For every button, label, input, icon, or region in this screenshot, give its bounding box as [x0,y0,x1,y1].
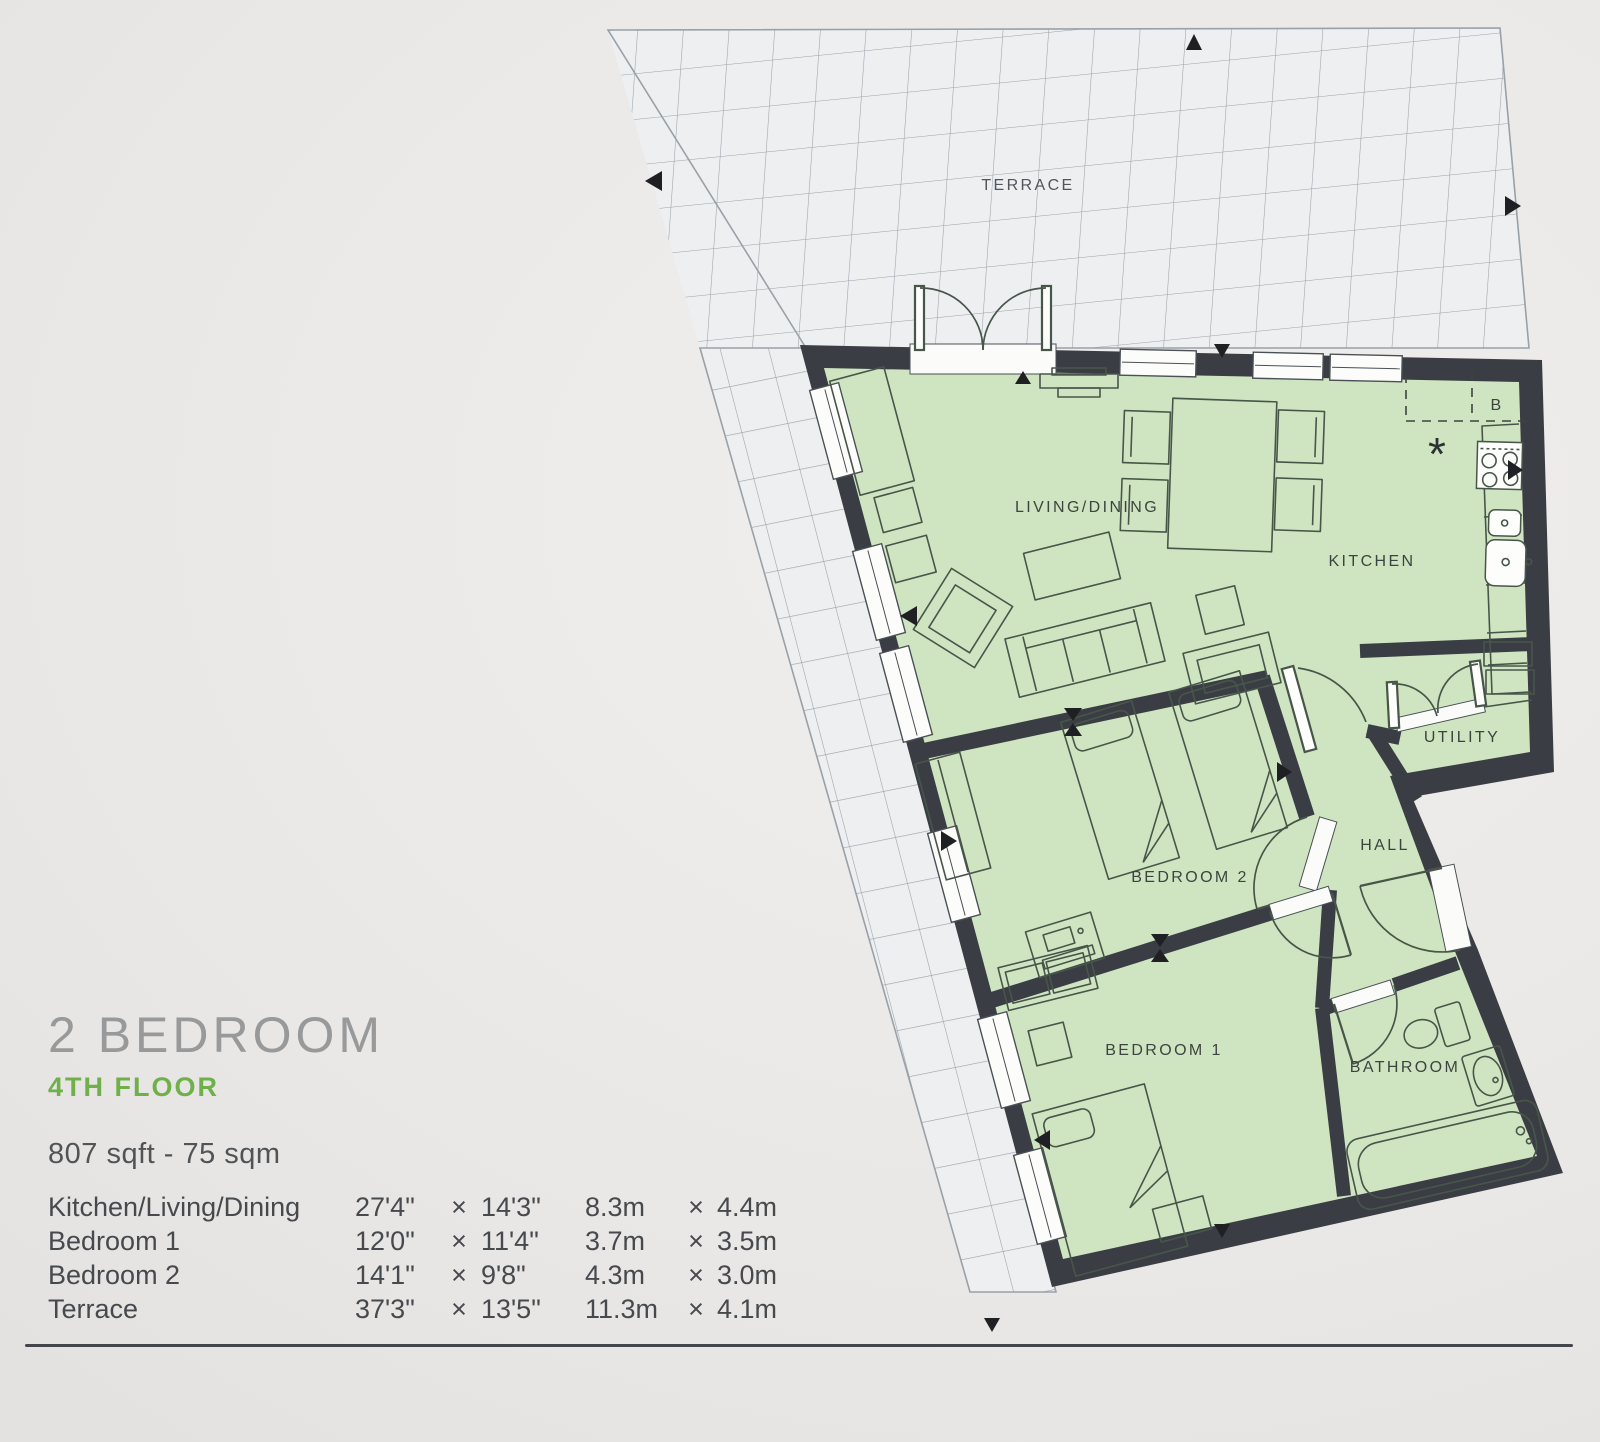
room-name: Bedroom 1 [48,1226,355,1257]
imperial-width: 27'4" [355,1192,437,1223]
living-label: LIVING/DINING [1015,499,1159,516]
times-symbol: × [437,1192,481,1223]
times-symbol: × [437,1294,481,1325]
imperial-width: 12'0" [355,1226,437,1257]
room-name: Bedroom 2 [48,1260,355,1291]
utility-label: UTILITY [1424,729,1500,746]
boiler-label: B [1490,397,1503,414]
window [1253,352,1324,380]
metric-height: 3.5m [717,1226,797,1257]
imperial-height: 11'4" [481,1226,585,1257]
times-symbol: × [437,1226,481,1257]
hob-marker-label: * [1428,428,1446,480]
imperial-width: 37'3" [355,1294,437,1325]
metric-height: 4.1m [717,1294,797,1325]
bedroom2-label: BEDROOM 2 [1131,869,1249,886]
floor-label: 4TH FLOOR [48,1072,219,1103]
kitchen-label: KITCHEN [1328,553,1415,570]
room-name: Terrace [48,1294,355,1325]
bedroom1-label: BEDROOM 1 [1105,1042,1223,1059]
window [1120,349,1197,377]
metric-width: 11.3m [585,1294,675,1325]
room-name: Kitchen/Living/Dining [48,1192,355,1223]
bottom-divider [25,1344,1573,1347]
imperial-height: 13'5" [481,1294,585,1325]
floorplan-page: TERRACE [0,0,1600,1442]
times-symbol: × [437,1260,481,1291]
times-symbol: × [675,1294,717,1325]
marker-icon [984,1318,1000,1332]
terrace-label: TERRACE [981,177,1074,194]
imperial-width: 14'1" [355,1260,437,1291]
hall-label: HALL [1360,837,1410,854]
window [1330,354,1403,382]
times-symbol: × [675,1260,717,1291]
table-row: Bedroom 1 12'0" × 11'4" 3.7m × 3.5m [48,1224,797,1258]
table-row: Kitchen/Living/Dining 27'4" × 14'3" 8.3m… [48,1190,797,1224]
times-symbol: × [675,1192,717,1223]
dimensions-table: Kitchen/Living/Dining 27'4" × 14'3" 8.3m… [48,1190,797,1326]
metric-width: 8.3m [585,1192,675,1223]
area-label: 807 sqft - 75 sqm [48,1138,281,1171]
metric-height: 4.4m [717,1192,797,1223]
table-row: Bedroom 2 14'1" × 9'8" 4.3m × 3.0m [48,1258,797,1292]
metric-width: 3.7m [585,1226,675,1257]
imperial-height: 14'3" [481,1192,585,1223]
imperial-height: 9'8" [481,1260,585,1291]
metric-height: 3.0m [717,1260,797,1291]
page-title: 2 BEDROOM [48,1006,384,1064]
metric-width: 4.3m [585,1260,675,1291]
table-row: Terrace 37'3" × 13'5" 11.3m × 4.1m [48,1292,797,1326]
times-symbol: × [675,1226,717,1257]
bathroom-label: BATHROOM [1350,1059,1460,1076]
